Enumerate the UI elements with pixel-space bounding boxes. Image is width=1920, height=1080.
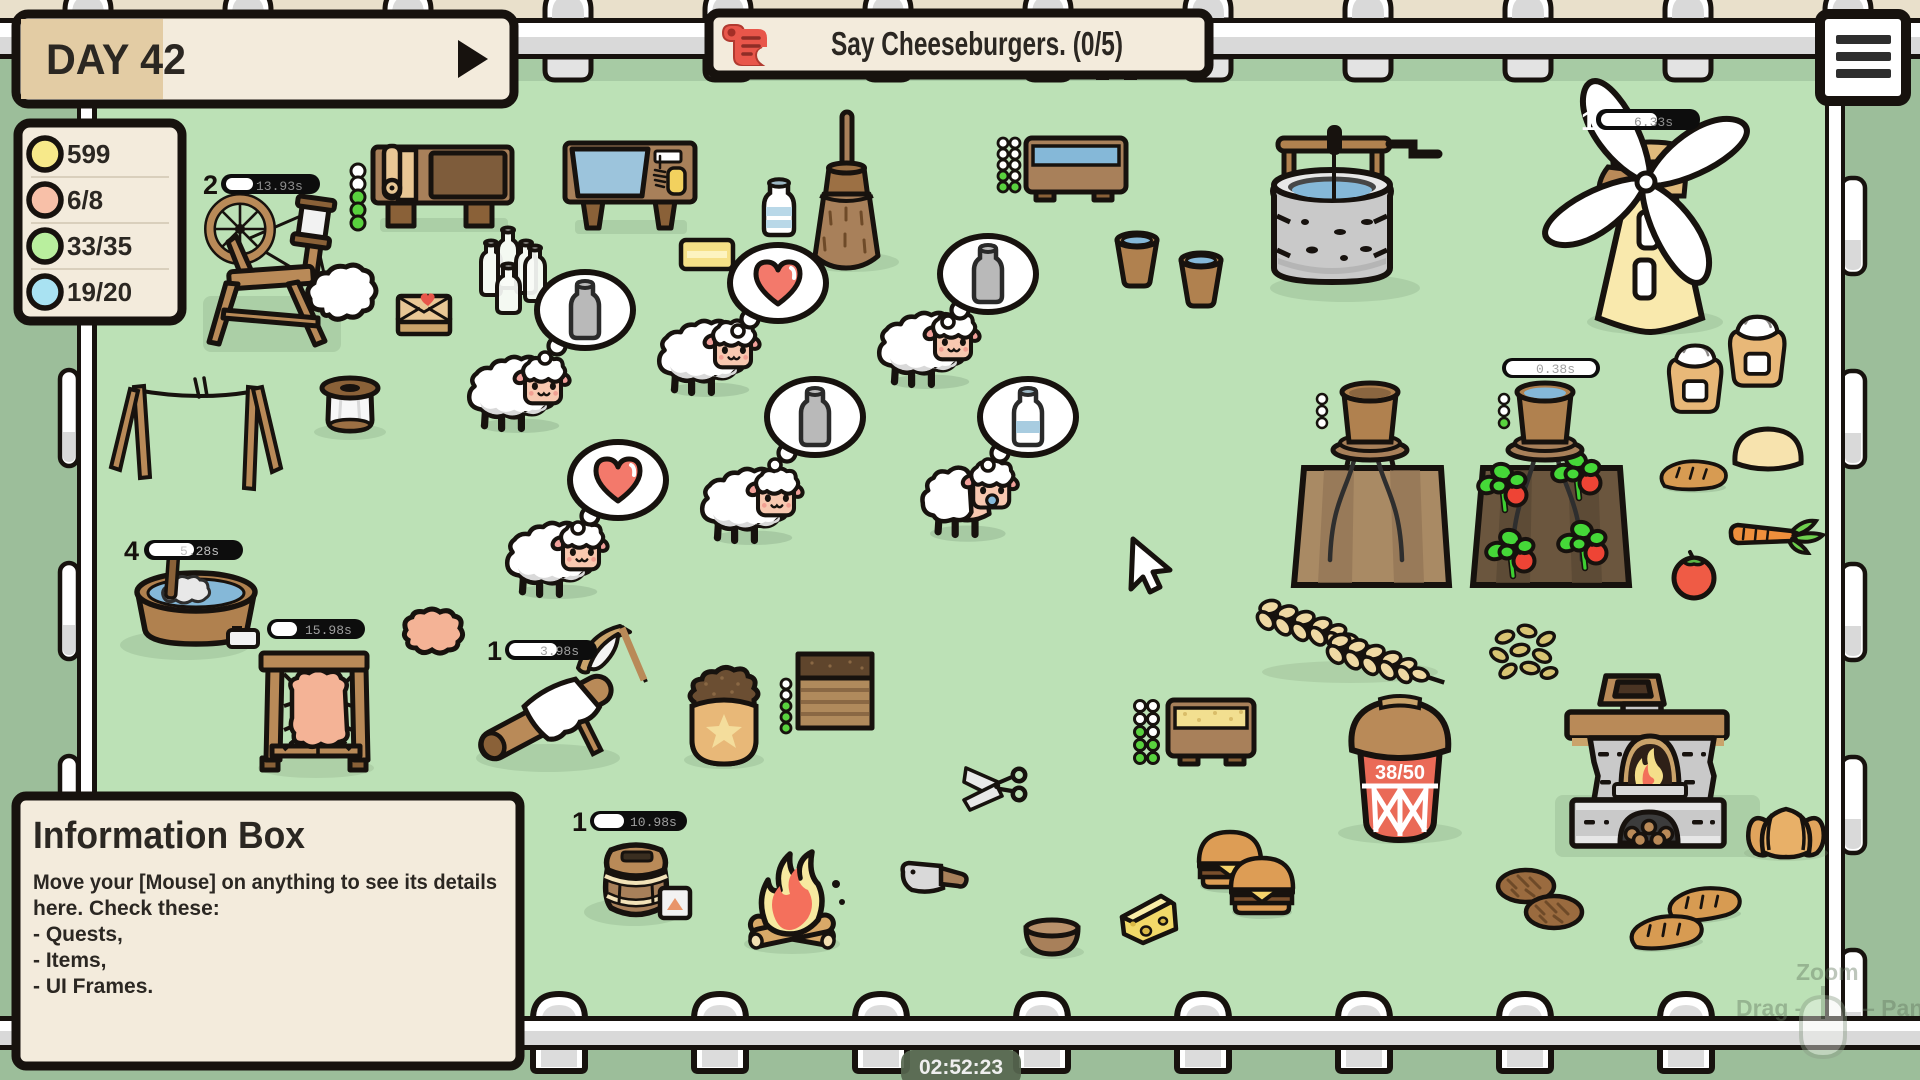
svg-text:6/8: 6/8 bbox=[67, 185, 103, 215]
svg-text:1: 1 bbox=[572, 807, 587, 837]
svg-text:Zoom: Zoom bbox=[1796, 959, 1859, 985]
svg-text:- Quests,: - Quests, bbox=[33, 923, 123, 946]
svg-text:6.33s: 6.33s bbox=[1634, 115, 1673, 130]
svg-text:- UI Frames.: - UI Frames. bbox=[33, 975, 153, 998]
svg-text:33/35: 33/35 bbox=[67, 231, 132, 261]
svg-text:Drag –: Drag – bbox=[1736, 995, 1808, 1021]
svg-text:2: 2 bbox=[203, 170, 218, 200]
svg-text:38/50: 38/50 bbox=[1375, 762, 1425, 784]
svg-text:Information Box: Information Box bbox=[33, 815, 305, 857]
svg-text:here. Check these:: here. Check these: bbox=[33, 897, 220, 920]
svg-text:Say Cheeseburgers. (0/5): Say Cheeseburgers. (0/5) bbox=[831, 25, 1123, 62]
svg-text:1: 1 bbox=[487, 636, 502, 666]
svg-text:02:52:23: 02:52:23 bbox=[919, 1056, 1003, 1079]
svg-text:13.93s: 13.93s bbox=[256, 179, 303, 194]
svg-text:DAY 42: DAY 42 bbox=[46, 36, 186, 84]
svg-text:– Pan: – Pan bbox=[1862, 995, 1920, 1021]
svg-text:19/20: 19/20 bbox=[67, 277, 132, 307]
svg-text:3.98s: 3.98s bbox=[540, 644, 579, 659]
svg-text:0.38s: 0.38s bbox=[1536, 362, 1575, 377]
svg-text:Move your [Mouse] on anything: Move your [Mouse] on anything to see its… bbox=[33, 871, 497, 894]
svg-text:15.98s: 15.98s bbox=[305, 623, 352, 638]
svg-text:- Items,: - Items, bbox=[33, 949, 107, 972]
svg-text:1: 1 bbox=[1581, 106, 1596, 136]
svg-text:5.28s: 5.28s bbox=[180, 544, 219, 559]
svg-text:4: 4 bbox=[124, 536, 139, 566]
svg-text:599: 599 bbox=[67, 139, 110, 169]
svg-text:10.98s: 10.98s bbox=[630, 815, 677, 830]
